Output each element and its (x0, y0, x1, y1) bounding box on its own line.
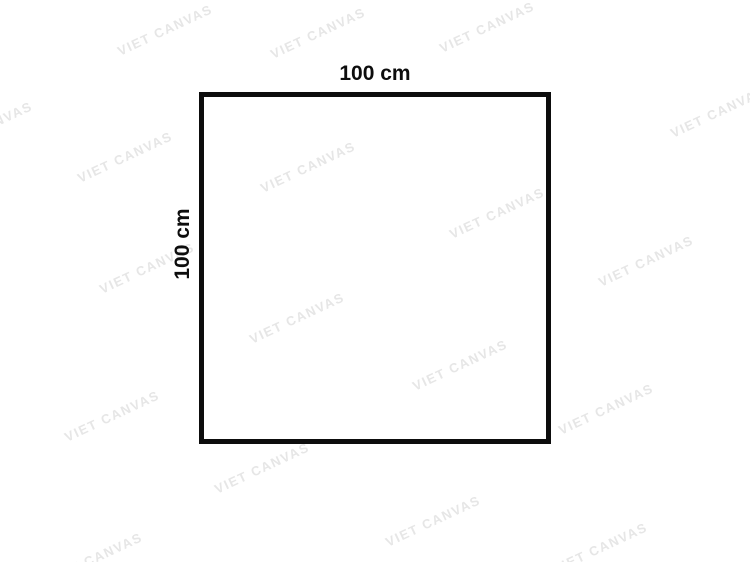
watermark-text: VIET CANVAS (268, 4, 368, 61)
diagram-canvas: VIET CANVASVIET CANVASVIET CANVASVIET CA… (0, 0, 750, 562)
left-dimension-label: 100 cm (171, 208, 195, 279)
square-shape (199, 92, 551, 444)
watermark-text: VIET CANVAS (45, 529, 145, 562)
watermark-text: VIET CANVAS (668, 83, 750, 140)
watermark-text: VIET CANVAS (383, 492, 483, 549)
watermark-text: VIET CANVAS (75, 128, 175, 185)
watermark-text: VIET CANVAS (437, 0, 537, 56)
top-dimension-label: 100 cm (199, 62, 551, 86)
watermark-text: VIET CANVAS (556, 380, 656, 437)
watermark-text: VIET CANVAS (550, 519, 650, 562)
watermark-text: VIET CANVAS (62, 387, 162, 444)
watermark-text: VIET CANVAS (596, 232, 696, 289)
watermark-text: VIET CANVAS (212, 439, 312, 496)
watermark-text: VIET CANVAS (0, 98, 35, 155)
watermark-text: VIET CANVAS (115, 1, 215, 58)
